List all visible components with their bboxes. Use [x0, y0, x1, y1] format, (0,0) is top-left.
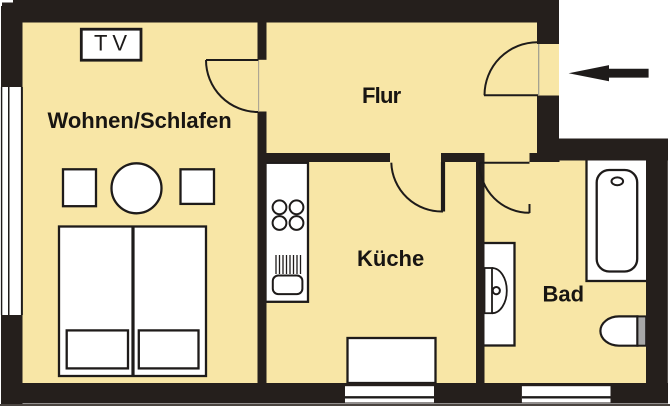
svg-text:TV: TV	[94, 31, 132, 56]
svg-text:Flur: Flur	[362, 83, 402, 108]
svg-text:Bad: Bad	[543, 281, 585, 306]
svg-text:Küche: Küche	[357, 246, 424, 271]
svg-text:Wohnen/Schlafen: Wohnen/Schlafen	[48, 108, 232, 133]
